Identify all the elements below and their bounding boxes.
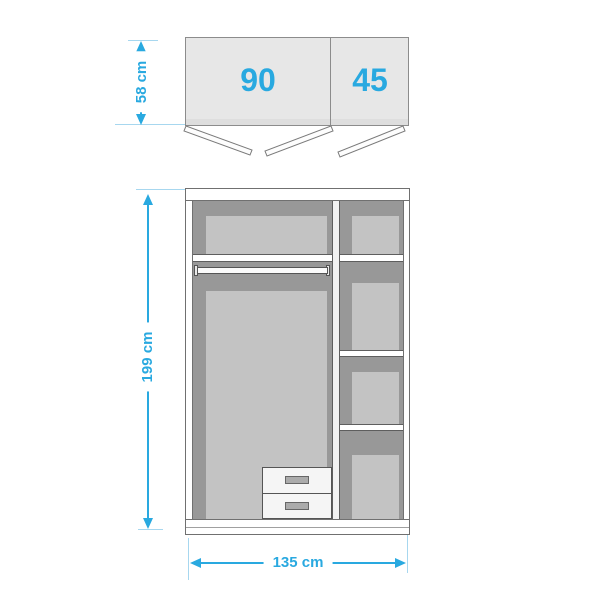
height-dim-bottom-tick [138,529,163,530]
right-compartment-inset-3 [352,372,399,424]
width-dim-arrow-right-icon [395,558,406,568]
plan-view: 58 cm 90 45 [0,0,600,170]
right-shelf-1 [340,254,403,262]
plinth-top-line [186,519,409,520]
height-dim-label: 199 cm [139,323,157,392]
right-shelf-2 [340,350,403,357]
left-top-compartment-inset [206,216,327,254]
height-dim-arrow-up-icon [143,194,153,205]
door-left-icon [184,126,252,155]
door-right-icon [338,126,405,157]
left-side-panel-line [192,201,193,519]
right-compartment-inset-1 [352,216,399,254]
door-swing-panels [0,0,600,170]
width-dim-left-extension [188,538,189,580]
wardrobe-dimension-diagram: 58 cm 90 45 199 cm [0,0,600,600]
height-dim-arrow-down-icon [143,518,153,529]
plinth-mid-line [186,527,409,528]
left-top-shelf [193,254,332,262]
right-compartment-inset-4 [352,455,399,519]
drawer-handle-bottom [285,502,309,510]
center-divider-panel [332,201,340,519]
right-side-panel-line [403,201,404,519]
front-view: 199 cm [0,170,600,600]
drawer-divider-line [263,493,331,494]
width-dim-arrow-left-icon [190,558,201,568]
right-shelf-3 [340,424,403,431]
drawer-handle-top [285,476,309,484]
width-dim-label: 135 cm [264,554,333,572]
door-middle-icon [265,126,333,156]
width-dim-right-extension [407,535,408,573]
right-compartment-inset-2 [352,283,399,350]
hanging-rod [197,267,328,274]
